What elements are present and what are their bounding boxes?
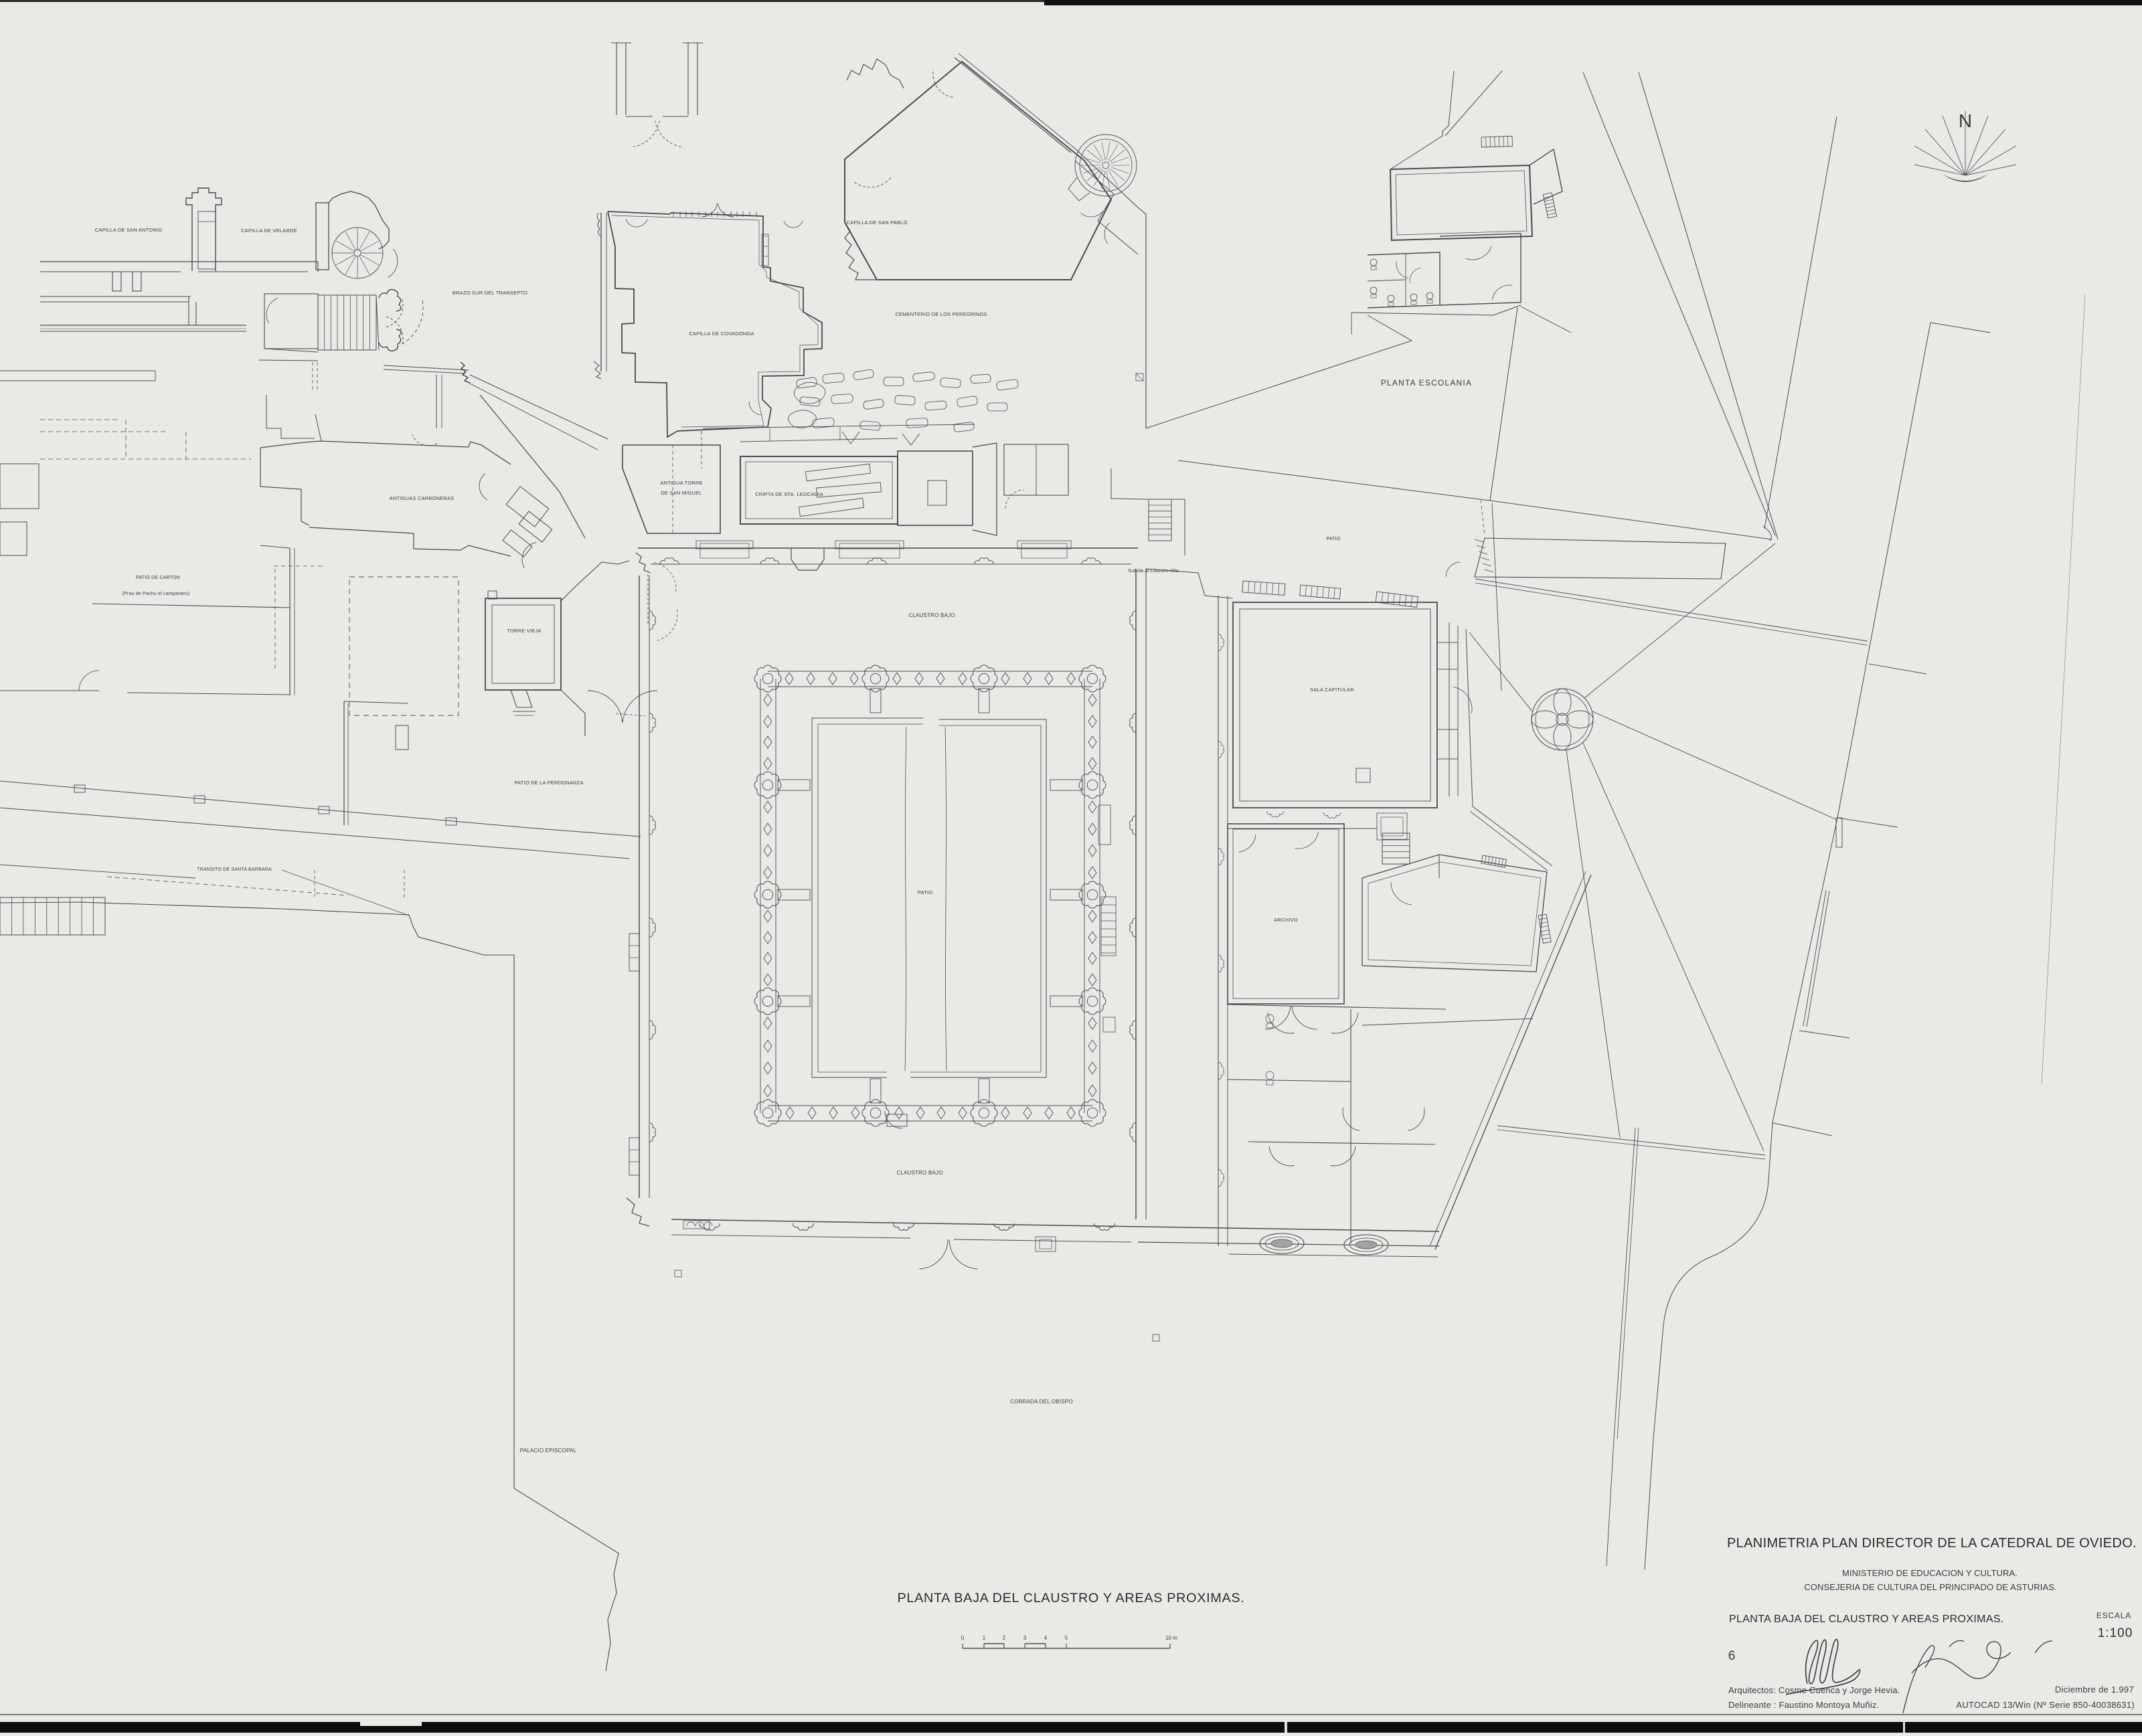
svg-text:PATIO: PATIO — [918, 889, 932, 895]
svg-text:Subida al Claustro Alto: Subida al Claustro Alto — [1128, 569, 1178, 574]
svg-text:TRANSITO DE SANTA BARBARA: TRANSITO DE SANTA BARBARA — [197, 867, 272, 872]
svg-text:PLANIMETRIA PLAN DIRECTOR DE L: PLANIMETRIA PLAN DIRECTOR DE LA CATEDRAL… — [1727, 1536, 2137, 1551]
svg-text:CRIPTA DE STA. LEOCADIA: CRIPTA DE STA. LEOCADIA — [755, 491, 823, 497]
svg-text:2: 2 — [1003, 1635, 1006, 1641]
svg-text:Delineante : Faustino Montoya: Delineante : Faustino Montoya Muñiz. — [1728, 1700, 1879, 1710]
svg-text:CORRADA DEL OBISPO: CORRADA DEL OBISPO — [1010, 1399, 1073, 1405]
svg-text:ARCHIVO: ARCHIVO — [1274, 917, 1298, 923]
svg-text:BRAZO SUR DEL TRANSEPTO: BRAZO SUR DEL TRANSEPTO — [452, 290, 527, 296]
svg-text:PLANTA BAJA DEL CLAUSTRO Y ARE: PLANTA BAJA DEL CLAUSTRO Y AREAS PROXIMA… — [898, 1591, 1245, 1605]
svg-text:4: 4 — [1044, 1635, 1048, 1641]
svg-text:SALA CAPITULAR: SALA CAPITULAR — [1310, 687, 1354, 693]
svg-text:1:100: 1:100 — [2098, 1626, 2133, 1640]
svg-text:N: N — [1959, 110, 1972, 131]
svg-text:AUTOCAD 13/Win (Nº Serie 850-4: AUTOCAD 13/Win (Nº Serie 850-40038631) — [1956, 1700, 2135, 1710]
svg-text:PLANTA ESCOLANIA: PLANTA ESCOLANIA — [1381, 378, 1472, 387]
svg-text:CAPILLA DE VELARDE: CAPILLA DE VELARDE — [241, 228, 297, 234]
svg-text:Diciembre de 1.997: Diciembre de 1.997 — [2055, 1684, 2134, 1695]
svg-text:ANTIGUA TORRE: ANTIGUA TORRE — [660, 480, 703, 486]
svg-text:ANTIGUAS CARBONERAS: ANTIGUAS CARBONERAS — [390, 495, 455, 501]
svg-text:TORRE VIEJA: TORRE VIEJA — [507, 628, 541, 634]
svg-text:CAPILLA DE SAN ANTONIO: CAPILLA DE SAN ANTONIO — [95, 227, 163, 233]
svg-text:CONSEJERIA DE CULTURA DEL PRIN: CONSEJERIA DE CULTURA DEL PRINCIPADO DE … — [1804, 1582, 2056, 1592]
svg-text:CAPILLA DE SAN PABLO: CAPILLA DE SAN PABLO — [847, 220, 908, 226]
svg-text:(Prau de Pachu el campaneru): (Prau de Pachu el campaneru) — [122, 592, 190, 596]
svg-text:PATIO: PATIO — [1327, 537, 1341, 541]
svg-text:5: 5 — [1065, 1635, 1068, 1641]
svg-text:3: 3 — [1023, 1635, 1027, 1641]
svg-text:CLAUSTRO BAJO: CLAUSTRO BAJO — [908, 612, 955, 618]
svg-text:PATIO DE CARTON: PATIO DE CARTON — [136, 576, 180, 580]
svg-text:Arquitectos: Cosme Cuenca y Jo: Arquitectos: Cosme Cuenca y Jorge Hevia. — [1728, 1685, 1900, 1695]
svg-text:10 m: 10 m — [1165, 1635, 1177, 1641]
svg-text:CAPILLA DE COVADONGA: CAPILLA DE COVADONGA — [689, 331, 754, 337]
svg-text:6: 6 — [1728, 1649, 1736, 1663]
svg-text:PALACIO EPISCOPAL: PALACIO EPISCOPAL — [520, 1448, 577, 1454]
svg-text:PATIO DE LA PERDONANZA: PATIO DE LA PERDONANZA — [514, 780, 583, 786]
svg-text:1: 1 — [983, 1635, 986, 1641]
svg-text:ESCALA: ESCALA — [2096, 1611, 2131, 1620]
svg-text:0: 0 — [961, 1635, 965, 1641]
svg-text:PLANTA BAJA DEL CLAUSTRO Y ARE: PLANTA BAJA DEL CLAUSTRO Y AREAS PROXIMA… — [1729, 1614, 2004, 1625]
svg-text:DE SAN MIGUEL: DE SAN MIGUEL — [661, 490, 702, 496]
svg-text:CLAUSTRO BAJO: CLAUSTRO BAJO — [896, 1170, 942, 1176]
svg-text:MINISTERIO DE EDUCACION Y CULT: MINISTERIO DE EDUCACION Y CULTURA. — [1842, 1568, 2017, 1578]
svg-text:CEMENTERIO DE LOS PEREGRINOS: CEMENTERIO DE LOS PEREGRINOS — [895, 311, 987, 317]
